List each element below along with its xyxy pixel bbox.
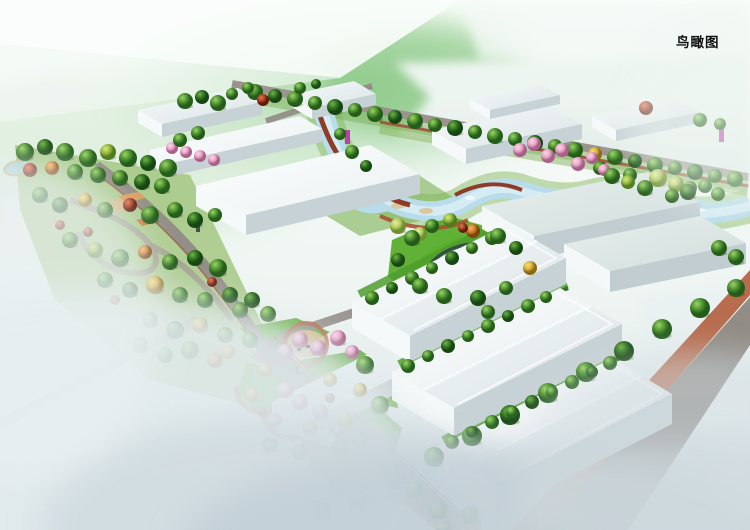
tree (404, 230, 420, 246)
tree (37, 139, 53, 155)
tree (443, 213, 457, 227)
tree (466, 224, 480, 238)
tree (100, 144, 116, 160)
tree (513, 143, 527, 157)
tree (348, 103, 362, 117)
tree (244, 292, 260, 308)
tree (481, 319, 495, 333)
tree (140, 155, 156, 171)
tree (487, 128, 503, 144)
tree (386, 282, 398, 294)
tree (527, 137, 541, 151)
rendering-canvas (0, 0, 750, 530)
tree (207, 277, 217, 287)
tree (268, 89, 282, 103)
tree (191, 126, 205, 140)
tree (466, 242, 478, 254)
tree (502, 310, 514, 322)
tree (436, 288, 452, 304)
tree (308, 96, 322, 110)
tree (426, 262, 438, 274)
tree (222, 287, 238, 303)
tree (711, 240, 727, 256)
tree (187, 212, 203, 228)
tree (621, 175, 635, 189)
tree (208, 154, 220, 166)
tree (509, 241, 523, 255)
tree (209, 259, 227, 277)
tree (242, 82, 254, 94)
tree (727, 279, 745, 297)
tree (447, 120, 463, 136)
tree (466, 426, 478, 438)
tree (652, 319, 672, 339)
tree (388, 110, 402, 124)
tree (311, 79, 321, 89)
tree (541, 149, 555, 163)
tree (208, 208, 222, 222)
tree (607, 149, 623, 165)
tree (401, 359, 415, 373)
tree (567, 142, 583, 158)
tree (728, 249, 744, 265)
tree (167, 202, 183, 218)
tree (521, 299, 535, 313)
tree (345, 345, 359, 359)
tree (180, 146, 192, 158)
tree (690, 298, 710, 318)
tree (195, 90, 209, 104)
tree (490, 228, 506, 244)
tree (112, 170, 128, 186)
tree (462, 330, 474, 342)
tree (523, 261, 537, 275)
tree (586, 152, 598, 164)
tree (425, 219, 439, 233)
tree (485, 415, 499, 429)
tree (412, 278, 428, 294)
tree (506, 406, 518, 418)
tree (546, 386, 558, 398)
tree (614, 341, 634, 361)
tree (123, 198, 137, 212)
tree (360, 160, 372, 172)
tree (294, 82, 306, 94)
tree (187, 250, 203, 266)
tree (134, 174, 150, 190)
tree (445, 251, 459, 265)
tree (16, 143, 34, 161)
tree (422, 350, 434, 362)
tree (499, 281, 513, 295)
tree (226, 88, 238, 100)
tree (210, 95, 226, 111)
tree (141, 206, 159, 224)
tree (637, 180, 653, 196)
tree (571, 157, 585, 171)
tree (481, 305, 495, 319)
tree (194, 150, 206, 162)
tree (345, 145, 359, 159)
tree (390, 218, 406, 234)
page-title: 鸟瞰图 (676, 31, 720, 51)
tree (119, 149, 137, 167)
tree (330, 330, 346, 346)
tree (441, 339, 455, 353)
tree (154, 178, 170, 194)
tree (468, 125, 482, 139)
accent-tower (345, 130, 350, 144)
tree (365, 291, 379, 305)
tree (56, 143, 74, 161)
tree (407, 113, 423, 129)
tree (540, 291, 552, 303)
tree (159, 159, 177, 177)
tree (525, 395, 539, 409)
aerial-view-rendering: 鸟瞰图 (0, 0, 750, 530)
tree (162, 254, 178, 270)
tree (177, 93, 193, 109)
tree (327, 99, 343, 115)
tree (470, 290, 486, 306)
tree (257, 94, 269, 106)
tree (458, 223, 468, 233)
tree (334, 128, 346, 140)
tree (173, 133, 187, 147)
tree (79, 149, 97, 167)
tree (367, 106, 383, 122)
tree (90, 167, 106, 183)
tree (604, 168, 620, 184)
tree (391, 253, 405, 267)
tree (428, 118, 442, 132)
tree (555, 143, 569, 157)
